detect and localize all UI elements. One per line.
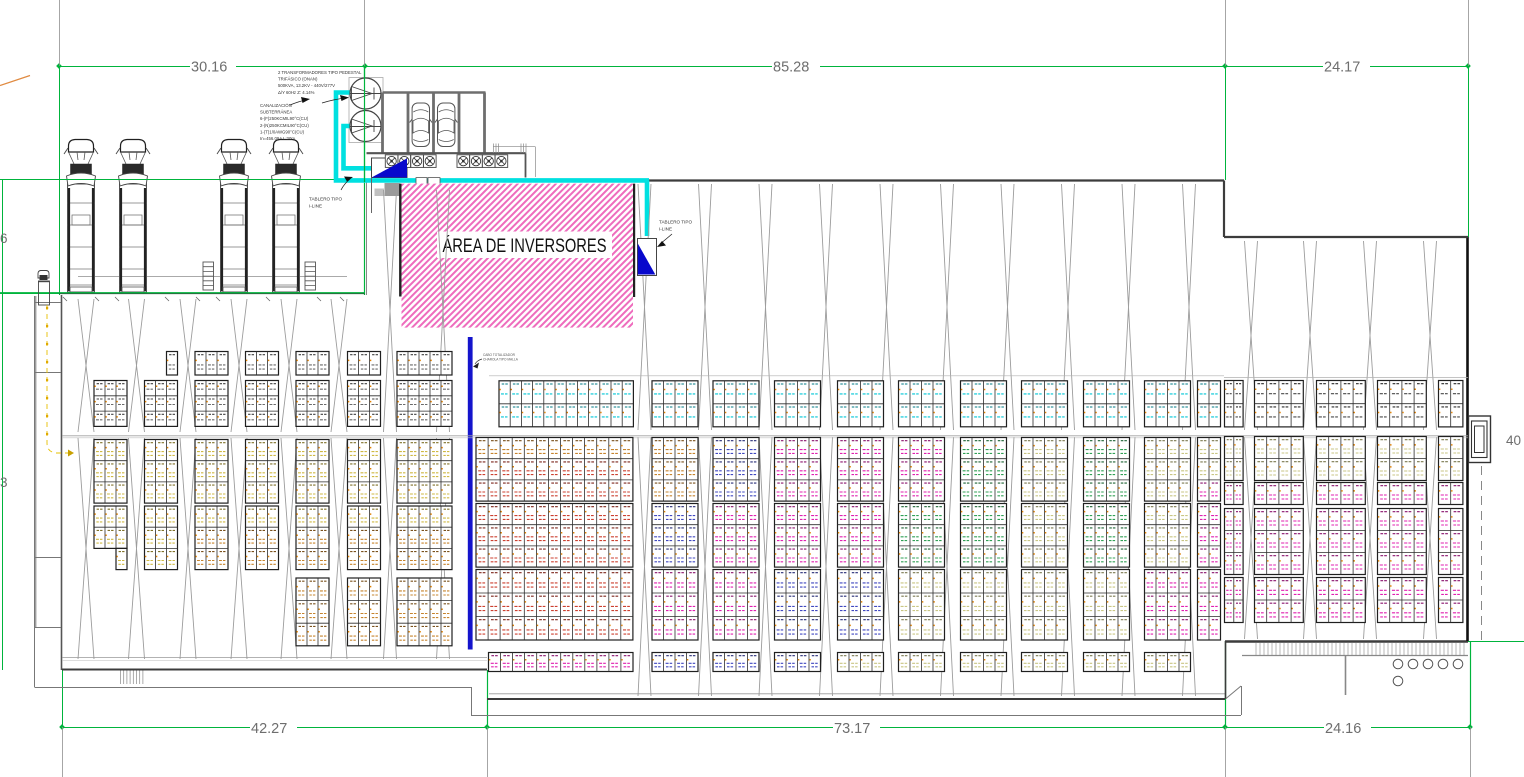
svg-text:CABO TOTALIZADOR: CABO TOTALIZADOR bbox=[483, 353, 516, 357]
svg-text:I-LINE: I-LINE bbox=[659, 227, 672, 232]
svg-text:2-(N)250KCMIL90°C(CU): 2-(N)250KCMIL90°C(CU) bbox=[260, 123, 309, 128]
svg-text:30.16: 30.16 bbox=[191, 60, 227, 76]
svg-text:I-LINE: I-LINE bbox=[309, 204, 322, 209]
svg-text:6: 6 bbox=[0, 231, 8, 246]
svg-text:40: 40 bbox=[1506, 433, 1521, 448]
svg-text:1-(T)1/0AWG90°C(CU): 1-(T)1/0AWG90°C(CU) bbox=[260, 129, 305, 134]
svg-text:SUBTERRÁNEA: SUBTERRÁNEA bbox=[260, 110, 292, 115]
svg-text:CHAROLA TIPO MALLA: CHAROLA TIPO MALLA bbox=[483, 358, 519, 362]
svg-text:TABLERO TIPO: TABLERO TIPO bbox=[659, 220, 692, 225]
svg-text:24.17: 24.17 bbox=[1324, 60, 1360, 76]
svg-text:3: 3 bbox=[0, 475, 8, 490]
svg-text:85.28: 85.28 bbox=[773, 60, 809, 76]
svg-text:2 TRANSFORMADORES TIPO PEDESTA: 2 TRANSFORMADORES TIPO PEDESTAL bbox=[278, 70, 362, 75]
svg-text:TABLERO TIPO: TABLERO TIPO bbox=[309, 197, 342, 202]
svg-text:In=456.09A L:20m: In=456.09A L:20m bbox=[260, 136, 295, 141]
svg-text:6-(F)250KCMIL90°C(CU): 6-(F)250KCMIL90°C(CU) bbox=[260, 116, 309, 121]
svg-text:73.17: 73.17 bbox=[834, 721, 870, 737]
svg-text:CANALIZACIÓN: CANALIZACIÓN bbox=[260, 103, 292, 108]
svg-text:TRIFÁSICO (ONAN): TRIFÁSICO (ONAN) bbox=[278, 77, 318, 82]
svg-text:ÁREA DE INVERSORES: ÁREA DE INVERSORES bbox=[443, 236, 607, 257]
svg-text:24.16: 24.16 bbox=[1325, 721, 1361, 737]
svg-text:42.27: 42.27 bbox=[251, 721, 287, 737]
svg-text:500KVA, 13.2KV - 440V/277V: 500KVA, 13.2KV - 440V/277V bbox=[278, 83, 335, 88]
svg-text:Δ/Y 60Hz Z: 4.14%: Δ/Y 60Hz Z: 4.14% bbox=[278, 90, 315, 95]
